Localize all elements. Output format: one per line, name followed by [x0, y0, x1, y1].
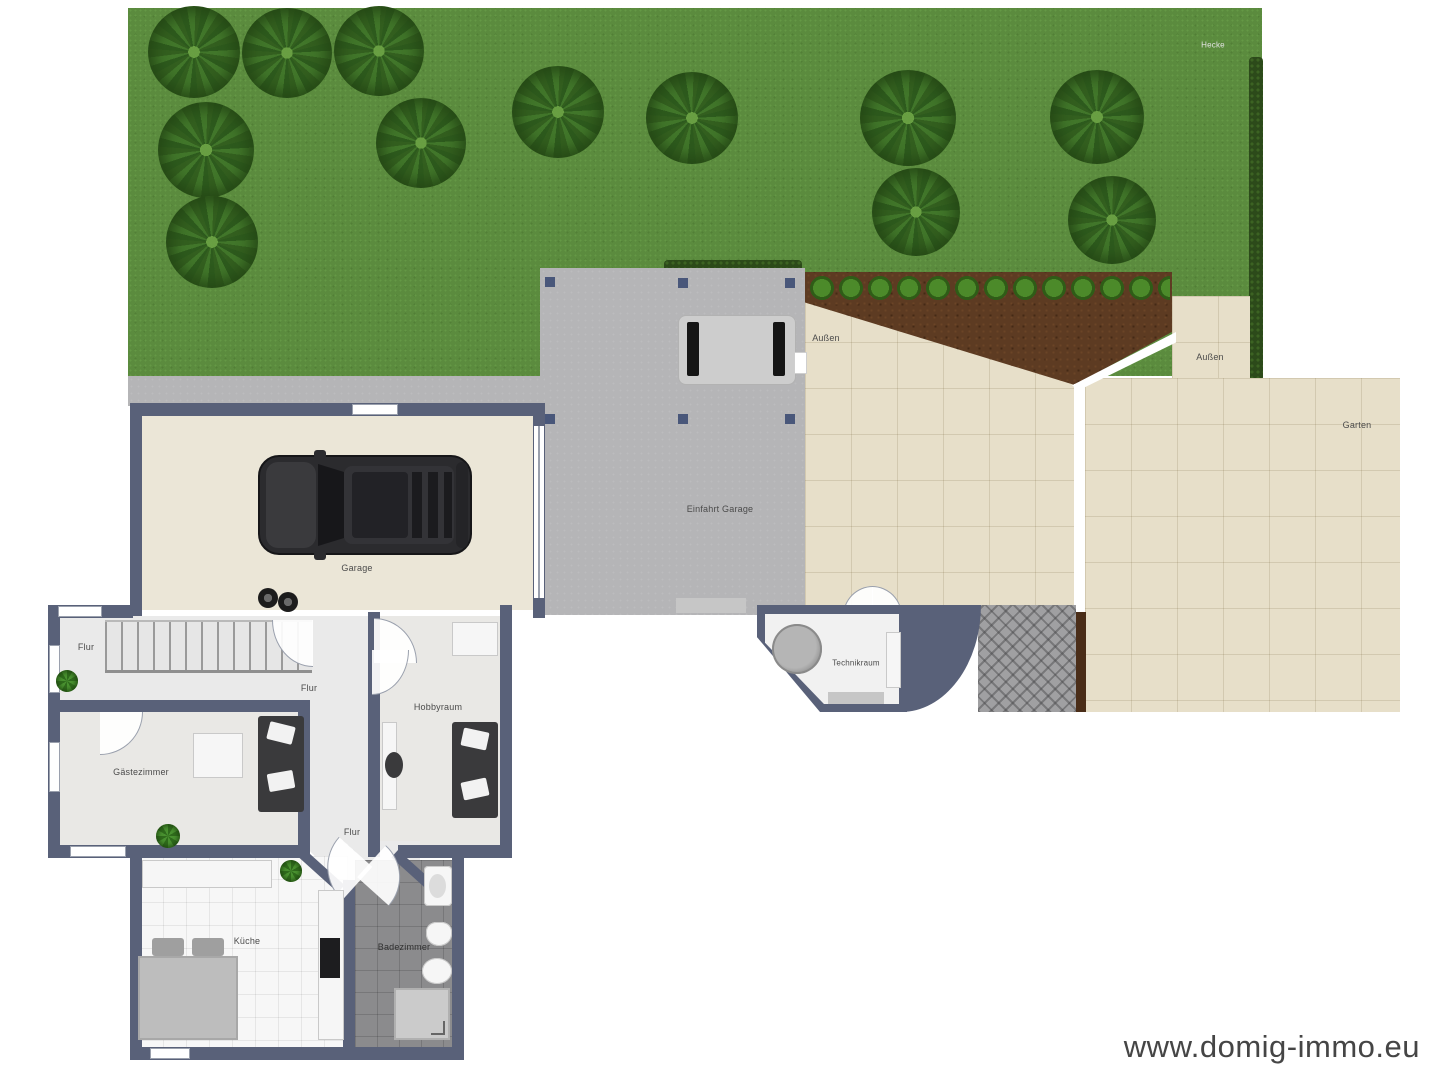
window — [150, 1048, 190, 1059]
tree-icon — [334, 6, 424, 96]
cabinet — [452, 622, 498, 656]
label-technikraum: Technikraum — [832, 659, 880, 668]
label-hobbyraum: Hobbyraum — [414, 702, 462, 712]
plant-icon — [280, 860, 302, 882]
pillow-icon — [460, 727, 489, 750]
tree-icon — [242, 8, 332, 98]
tree-icon — [158, 102, 254, 198]
sofa — [258, 716, 304, 812]
shrub-row — [808, 272, 1170, 306]
oven-icon — [320, 938, 340, 978]
garage-window — [352, 404, 398, 415]
pillow-icon — [460, 777, 489, 800]
pillow-icon — [266, 721, 296, 745]
sofa — [452, 722, 498, 818]
car-top-view — [256, 450, 474, 560]
label-hecke: Hecke — [1201, 41, 1225, 50]
tree-icon — [166, 196, 258, 288]
label-kueche: Küche — [234, 936, 261, 946]
bidet-icon — [422, 958, 452, 984]
label-flur-upper: Flur — [78, 642, 94, 652]
wall — [500, 605, 512, 857]
plant-icon — [156, 824, 180, 848]
label-badezimmer: Badezimmer — [378, 942, 431, 952]
post-icon — [785, 278, 795, 288]
doormat — [676, 598, 746, 613]
gate-bar-icon — [773, 322, 785, 376]
wall — [452, 845, 464, 1060]
window — [49, 742, 60, 792]
water-tank-icon — [772, 624, 822, 674]
window — [70, 846, 126, 857]
tree-icon — [1050, 70, 1144, 164]
label-gaestezimmer: Gästezimmer — [113, 767, 169, 777]
tree-icon — [872, 168, 960, 256]
garage-wall-top — [130, 403, 545, 416]
chair-icon — [152, 938, 184, 956]
brick-path — [978, 605, 1076, 712]
curved-wall — [901, 605, 981, 712]
watermark: www.domig-immo.eu — [1124, 1029, 1420, 1065]
floor-plan: Hecke Außen Außen Garten Einfahrt Garage… — [0, 0, 1436, 1077]
kitchen-counter-top — [142, 860, 272, 888]
tree-icon — [512, 66, 604, 158]
sink-icon — [424, 866, 452, 906]
patio-divider-gap — [1074, 384, 1085, 612]
shower-icon — [394, 988, 450, 1040]
post-icon — [785, 414, 795, 424]
chair-icon — [192, 938, 224, 956]
label-flur-lower: Flur — [344, 827, 360, 837]
label-einfahrt-garage: Einfahrt Garage — [687, 504, 754, 514]
label-aussen-right: Außen — [1196, 352, 1224, 362]
corridor — [308, 616, 370, 848]
tree-icon — [148, 6, 240, 98]
post-icon — [545, 414, 555, 424]
label-garten: Garten — [1343, 420, 1372, 430]
patio-upper-right — [1172, 296, 1250, 382]
desk-chair — [385, 752, 403, 778]
hedge-right — [1249, 57, 1263, 405]
wall — [48, 605, 60, 857]
tech-cabinet — [886, 632, 901, 688]
tree-icon — [860, 70, 956, 166]
post-icon — [545, 277, 555, 287]
tree-icon — [376, 98, 466, 188]
wall — [343, 880, 355, 1060]
window — [58, 606, 102, 617]
pillow-icon — [267, 770, 296, 792]
driveway-band-above-garage — [128, 376, 545, 406]
dining-table — [138, 956, 238, 1040]
plant-icon — [56, 670, 78, 692]
gate-step — [794, 352, 807, 374]
tree-icon — [646, 72, 738, 164]
label-flur-mid: Flur — [301, 683, 317, 693]
barrel-icon — [278, 592, 298, 612]
gate-bar-icon — [687, 322, 699, 376]
garage-wall-left — [130, 403, 142, 618]
label-aussen-left: Außen — [812, 333, 840, 343]
barrel-icon — [258, 588, 278, 608]
tech-mat — [828, 692, 884, 704]
tree-icon — [1068, 176, 1156, 264]
wall — [48, 700, 310, 712]
post-icon — [678, 414, 688, 424]
garage-door-line — [538, 426, 540, 598]
table — [193, 733, 243, 778]
label-garage: Garage — [341, 563, 372, 573]
post-icon — [678, 278, 688, 288]
